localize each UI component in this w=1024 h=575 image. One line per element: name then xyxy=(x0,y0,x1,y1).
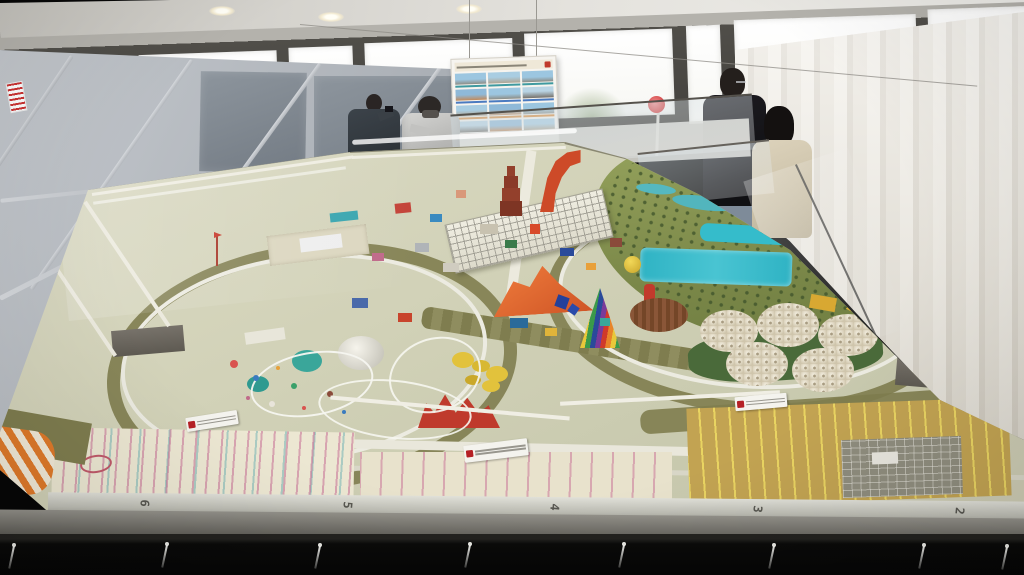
plaque-symbol-icon xyxy=(737,400,745,408)
brown-rotunda-pavilion xyxy=(630,298,688,332)
plaque-symbol-icon xyxy=(188,420,196,428)
visitor-scarf xyxy=(422,110,439,118)
glasses-icon xyxy=(736,81,746,83)
plaque-text-illegible xyxy=(746,396,786,407)
board-photo-cell xyxy=(521,70,553,85)
white-dome-pavilion xyxy=(726,342,788,386)
mini-pavilion xyxy=(545,328,557,336)
mini-pavilion xyxy=(510,318,528,328)
board-wire xyxy=(469,0,470,58)
plaque-text-illegible xyxy=(197,414,237,428)
plaque-text-illegible xyxy=(475,443,527,457)
amusement-details-dots xyxy=(230,360,238,368)
board-photo-cell xyxy=(455,89,487,104)
board-title-text-illegible xyxy=(457,64,527,68)
tie-string xyxy=(314,546,321,569)
white-dome-pavilion xyxy=(757,303,819,347)
platform-black-skirt xyxy=(0,534,1024,575)
board-photo-cell xyxy=(455,73,487,88)
camera-icon xyxy=(385,106,393,112)
board-logo-icon xyxy=(544,61,550,67)
grid-label: 5 xyxy=(340,501,355,510)
grid-label: 3 xyxy=(750,505,765,514)
mini-pavilion xyxy=(600,318,610,326)
mini-pavilion xyxy=(398,313,412,322)
board-photo-cell xyxy=(488,71,520,86)
construction-site xyxy=(841,436,963,498)
tie-string xyxy=(464,545,471,568)
downlight-icon xyxy=(318,12,344,22)
plaque-symbol-icon xyxy=(466,450,474,458)
wall-notice xyxy=(6,81,28,113)
grid-label: 2 xyxy=(952,507,967,516)
white-dome-pavilion xyxy=(792,348,854,392)
tie-string xyxy=(8,546,15,569)
board-wire xyxy=(536,0,537,58)
tie-string xyxy=(768,546,775,569)
tie-string xyxy=(161,545,168,568)
tie-string xyxy=(618,545,625,568)
mini-pavilion xyxy=(352,298,368,308)
board-photo-cell xyxy=(522,86,554,101)
board-photo-cell xyxy=(489,87,521,102)
exhibition-room-photo: 6 5 4 3 2 xyxy=(0,0,1024,575)
site-building xyxy=(872,452,898,465)
downlight-icon xyxy=(209,6,235,16)
tie-string xyxy=(1001,547,1008,570)
grid-label: 6 xyxy=(137,499,152,508)
tie-string xyxy=(918,546,925,569)
grid-label: 4 xyxy=(547,503,562,512)
